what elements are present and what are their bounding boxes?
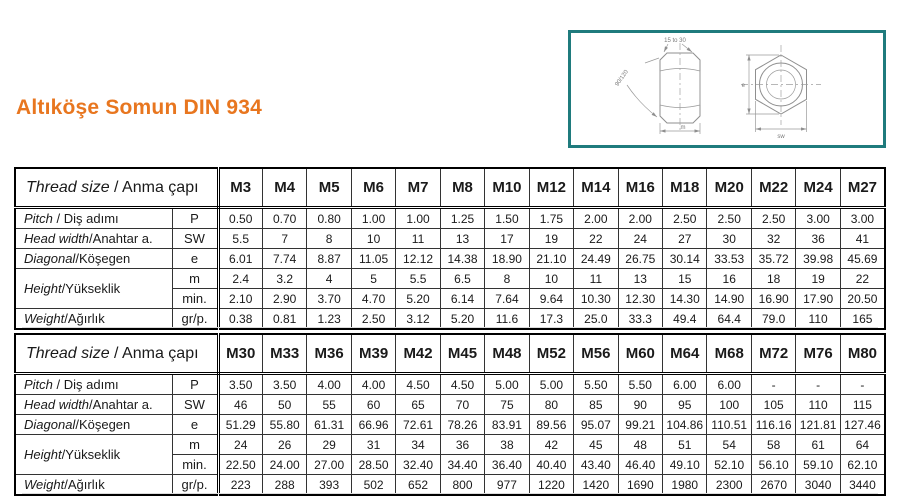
data-cell: 2.90 [262,289,306,309]
row-unit: SW [172,395,218,415]
table-header-tr: / Anma çapı [110,345,199,362]
data-cell: 13 [440,229,484,249]
data-cell: 1220 [529,475,573,496]
row-label: Height/Yükseklik [15,269,172,309]
data-cell: 12.30 [618,289,662,309]
data-cell: 39.98 [796,249,840,269]
data-cell: 110 [796,395,840,415]
row-label-en: Head width [24,231,89,246]
column-header-m18: M18 [663,168,707,208]
data-cell: 51.29 [218,415,262,435]
data-cell: 6.5 [440,269,484,289]
data-cell: 115 [840,395,885,415]
data-cell: 393 [307,475,351,496]
data-cell: 48 [618,435,662,455]
row-label-tr: /Yükseklik [62,281,121,296]
data-cell: 0.50 [218,208,262,229]
data-cell: 11.05 [351,249,395,269]
data-cell: 26.75 [618,249,662,269]
row-unit: SW [172,229,218,249]
column-header-m16: M16 [618,168,662,208]
data-cell: 2.50 [663,208,707,229]
column-header-m48: M48 [485,334,529,374]
row-label-tr: / Diş adımı [53,377,119,392]
data-cell: 8.87 [307,249,351,269]
data-cell: 18 [751,269,795,289]
data-cell: 11 [574,269,618,289]
data-cell: 16 [707,269,751,289]
data-cell: 14.30 [663,289,707,309]
data-cell: 0.70 [262,208,306,229]
data-cell: 34 [396,435,440,455]
row-label-tr: /Anahtar a. [89,397,153,412]
data-cell: 49.4 [663,309,707,330]
column-header-m5: M5 [307,168,351,208]
data-cell: 12.12 [396,249,440,269]
data-cell: 45.69 [840,249,885,269]
column-header-m7: M7 [396,168,440,208]
chamfer-angle-label: 15 to 30 [664,38,686,44]
data-cell: 5.5 [396,269,440,289]
data-cell: 3.12 [396,309,440,330]
data-cell: 3.50 [218,374,262,395]
row-label: Head width/Anahtar a. [15,229,172,249]
row-label-en: Pitch [24,211,53,226]
data-cell: 46 [218,395,262,415]
column-header-m10: M10 [485,168,529,208]
row-label: Diagonal/Köşegen [15,415,172,435]
data-cell: 33.53 [707,249,751,269]
data-cell: 3.70 [307,289,351,309]
data-cell: 36 [796,229,840,249]
data-cell: 3.00 [796,208,840,229]
row-unit: min. [172,455,218,475]
thread-size-table-m3-m27: Thread size / Anma çapıM3M4M5M6M7M8M10M1… [14,167,886,330]
data-cell: 7.74 [262,249,306,269]
column-header-m22: M22 [751,168,795,208]
data-cell: 60 [351,395,395,415]
data-cell: 54 [707,435,751,455]
data-cell: 6.01 [218,249,262,269]
table-header-en: Thread size [26,179,110,196]
row-unit: P [172,374,218,395]
data-cell: 78.26 [440,415,484,435]
data-cell: 3.00 [840,208,885,229]
row-unit: P [172,208,218,229]
data-cell: 22.50 [218,455,262,475]
column-header-m6: M6 [351,168,395,208]
row-label: Diagonal/Köşegen [15,249,172,269]
data-cell: 100 [707,395,751,415]
data-cell: 14.90 [707,289,751,309]
data-cell: 5.20 [396,289,440,309]
data-cell: 22 [574,229,618,249]
row-label-tr: /Anahtar a. [89,231,153,246]
data-cell: 72.61 [396,415,440,435]
data-cell: 29 [307,435,351,455]
row-label: Pitch / Diş adımı [15,208,172,229]
row-label-en: Diagonal [24,417,75,432]
data-cell: 19 [529,229,573,249]
row-unit: e [172,249,218,269]
data-cell: 18.90 [485,249,529,269]
row-label-tr: /Köşegen [75,417,130,432]
data-cell: 70 [440,395,484,415]
data-cell: 79.0 [751,309,795,330]
row-unit: m [172,435,218,455]
data-cell: 80 [529,395,573,415]
column-header-m64: M64 [663,334,707,374]
data-cell: 46.40 [618,455,662,475]
data-cell: 24.00 [262,455,306,475]
data-cell: 24.49 [574,249,618,269]
catalog-page: Altıköşe Somun DIN 934 m 15 to 30 [0,0,900,498]
data-cell: 1.00 [396,208,440,229]
data-cell: - [751,374,795,395]
row-label: Weight/Ağırlık [15,309,172,330]
data-cell: 0.38 [218,309,262,330]
column-header-m24: M24 [796,168,840,208]
data-cell: 20.50 [840,289,885,309]
data-cell: 19 [796,269,840,289]
data-cell: 104.86 [663,415,707,435]
data-cell: 38 [485,435,529,455]
hex-nut-side-view: m 15 to 30 90/120 [614,38,700,134]
data-cell: 5.00 [485,374,529,395]
dim-label-e: e [742,83,746,89]
column-header-m72: M72 [751,334,795,374]
data-cell: 36.40 [485,455,529,475]
data-cell: 31 [351,435,395,455]
data-cell: 1.25 [440,208,484,229]
data-cell: 121.81 [796,415,840,435]
data-cell: 22 [840,269,885,289]
column-header-m27: M27 [840,168,885,208]
data-cell: 5 [351,269,395,289]
row-unit: gr/p. [172,475,218,496]
data-cell: 0.80 [307,208,351,229]
data-cell: 6.14 [440,289,484,309]
row-unit: e [172,415,218,435]
data-cell: 9.64 [529,289,573,309]
data-cell: 17.3 [529,309,573,330]
data-cell: 58 [751,435,795,455]
data-cell: 116.16 [751,415,795,435]
data-cell: 288 [262,475,306,496]
column-header-m80: M80 [840,334,885,374]
data-cell: 5.5 [218,229,262,249]
data-cell: 4.70 [351,289,395,309]
data-cell: 26 [262,435,306,455]
data-cell: 4.50 [440,374,484,395]
row-label-en: Height [24,281,62,296]
data-cell: - [840,374,885,395]
table-header-tr: / Anma çapı [110,179,199,196]
column-header-m60: M60 [618,334,662,374]
hex-nut-front-view: e sw [741,45,821,139]
table-header-en: Thread size [26,345,110,362]
column-header-m45: M45 [440,334,484,374]
data-cell: 28.50 [351,455,395,475]
data-cell: 10 [529,269,573,289]
data-cell: 61.31 [307,415,351,435]
column-header-m39: M39 [351,334,395,374]
data-cell: 5.20 [440,309,484,330]
data-cell: 66.96 [351,415,395,435]
data-cell: 2.50 [751,208,795,229]
data-cell: 56.10 [751,455,795,475]
column-header-m3: M3 [218,168,262,208]
column-header-m12: M12 [529,168,573,208]
data-cell: 21.10 [529,249,573,269]
data-cell: 50 [262,395,306,415]
data-cell: 6.00 [663,374,707,395]
data-cell: 17.90 [796,289,840,309]
data-cell: 4.00 [351,374,395,395]
row-label-en: Weight [24,477,64,492]
data-cell: 62.10 [840,455,885,475]
data-cell: 34.40 [440,455,484,475]
data-cell: 4.50 [396,374,440,395]
data-cell: 0.81 [262,309,306,330]
data-cell: 35.72 [751,249,795,269]
data-cell: 41 [840,229,885,249]
row-label: Weight/Ağırlık [15,475,172,496]
data-cell: 7.64 [485,289,529,309]
data-cell: 1.00 [351,208,395,229]
data-cell: 1.75 [529,208,573,229]
row-label-en: Head width [24,397,89,412]
data-cell: 502 [351,475,395,496]
data-cell: 6.00 [707,374,751,395]
data-cell: 24 [618,229,662,249]
data-cell: 42 [529,435,573,455]
data-cell: 95.07 [574,415,618,435]
data-cell: 1.23 [307,309,351,330]
row-label-tr: /Yükseklik [62,447,121,462]
column-header-m68: M68 [707,334,751,374]
column-header-m4: M4 [262,168,306,208]
data-cell: 85 [574,395,618,415]
data-cell: 59.10 [796,455,840,475]
data-cell: 24 [218,435,262,455]
row-label-en: Height [24,447,62,462]
data-cell: 127.46 [840,415,885,435]
scan-artifact-line [22,493,878,494]
data-cell: 2670 [751,475,795,496]
data-cell: 1980 [663,475,707,496]
column-header-m8: M8 [440,168,484,208]
data-cell: 49.10 [663,455,707,475]
data-cell: 83.91 [485,415,529,435]
hex-nut-technical-drawing: m 15 to 30 90/120 e [571,33,877,139]
row-unit: m [172,269,218,289]
data-cell: 8 [485,269,529,289]
data-cell: 2.4 [218,269,262,289]
data-cell: 25.0 [574,309,618,330]
column-header-m36: M36 [307,334,351,374]
data-cell: 75 [485,395,529,415]
data-cell: 4.00 [307,374,351,395]
data-cell: 40.40 [529,455,573,475]
column-header-m76: M76 [796,334,840,374]
table-header-thread-size: Thread size / Anma çapı [15,334,218,374]
data-cell: 3.50 [262,374,306,395]
data-cell: 2300 [707,475,751,496]
column-header-m52: M52 [529,334,573,374]
data-cell: 10 [351,229,395,249]
data-cell: 16.90 [751,289,795,309]
data-cell: 64 [840,435,885,455]
table-header-thread-size: Thread size / Anma çapı [15,168,218,208]
data-cell: 27.00 [307,455,351,475]
row-label: Pitch / Diş adımı [15,374,172,395]
data-cell: 90 [618,395,662,415]
data-cell: 33.3 [618,309,662,330]
row-label-en: Pitch [24,377,53,392]
column-header-m42: M42 [396,334,440,374]
data-cell: 110.51 [707,415,751,435]
column-header-m30: M30 [218,334,262,374]
data-cell: 13 [618,269,662,289]
data-cell: 55 [307,395,351,415]
row-label-tr: /Ağırlık [64,311,104,326]
data-cell: 11 [396,229,440,249]
row-label: Head width/Anahtar a. [15,395,172,415]
data-cell: 14.38 [440,249,484,269]
data-cell: 1420 [574,475,618,496]
data-cell: 55.80 [262,415,306,435]
data-cell: 3040 [796,475,840,496]
data-cell: 2.00 [618,208,662,229]
row-label-tr: /Köşegen [75,251,130,266]
data-cell: 30.14 [663,249,707,269]
thread-size-table-m30-m80: Thread size / Anma çapıM30M33M36M39M42M4… [14,333,886,496]
data-cell: 223 [218,475,262,496]
data-cell: 95 [663,395,707,415]
data-cell: 5.50 [574,374,618,395]
row-label-en: Diagonal [24,251,75,266]
data-cell: 800 [440,475,484,496]
data-cell: 110 [796,309,840,330]
data-cell: 165 [840,309,885,330]
data-cell: 2.00 [574,208,618,229]
page-title: Altıköşe Somun DIN 934 [16,96,262,120]
data-cell: 2.50 [351,309,395,330]
data-cell: 65 [396,395,440,415]
row-unit: gr/p. [172,309,218,330]
data-cell: 30 [707,229,751,249]
data-cell: 15 [663,269,707,289]
data-cell: - [796,374,840,395]
bevel-angle-label: 90/120 [614,69,630,88]
data-cell: 652 [396,475,440,496]
technical-drawing-panel: m 15 to 30 90/120 e [568,30,886,148]
column-header-m20: M20 [707,168,751,208]
row-label: Height/Yükseklik [15,435,172,475]
column-header-m56: M56 [574,334,618,374]
dim-label-m: m [681,125,686,131]
data-cell: 99.21 [618,415,662,435]
data-cell: 1.50 [485,208,529,229]
data-cell: 11.6 [485,309,529,330]
data-cell: 17 [485,229,529,249]
data-cell: 8 [307,229,351,249]
scan-artifact-line [22,327,878,328]
data-cell: 32 [751,229,795,249]
data-cell: 43.40 [574,455,618,475]
data-cell: 977 [485,475,529,496]
data-cell: 51 [663,435,707,455]
data-cell: 32.40 [396,455,440,475]
data-cell: 10.30 [574,289,618,309]
data-cell: 2.10 [218,289,262,309]
column-header-m33: M33 [262,334,306,374]
row-label-en: Weight [24,311,64,326]
data-cell: 3440 [840,475,885,496]
row-label-tr: /Ağırlık [64,477,104,492]
row-unit: min. [172,289,218,309]
data-cell: 1690 [618,475,662,496]
data-cell: 27 [663,229,707,249]
data-cell: 52.10 [707,455,751,475]
row-label-tr: / Diş adımı [53,211,119,226]
data-cell: 89.56 [529,415,573,435]
data-cell: 3.2 [262,269,306,289]
data-cell: 105 [751,395,795,415]
data-cell: 45 [574,435,618,455]
data-cell: 36 [440,435,484,455]
data-cell: 5.50 [618,374,662,395]
data-cell: 64.4 [707,309,751,330]
data-cell: 5.00 [529,374,573,395]
data-cell: 61 [796,435,840,455]
data-cell: 7 [262,229,306,249]
column-header-m14: M14 [574,168,618,208]
dim-label-sw: sw [777,134,785,139]
data-cell: 2.50 [707,208,751,229]
data-cell: 4 [307,269,351,289]
